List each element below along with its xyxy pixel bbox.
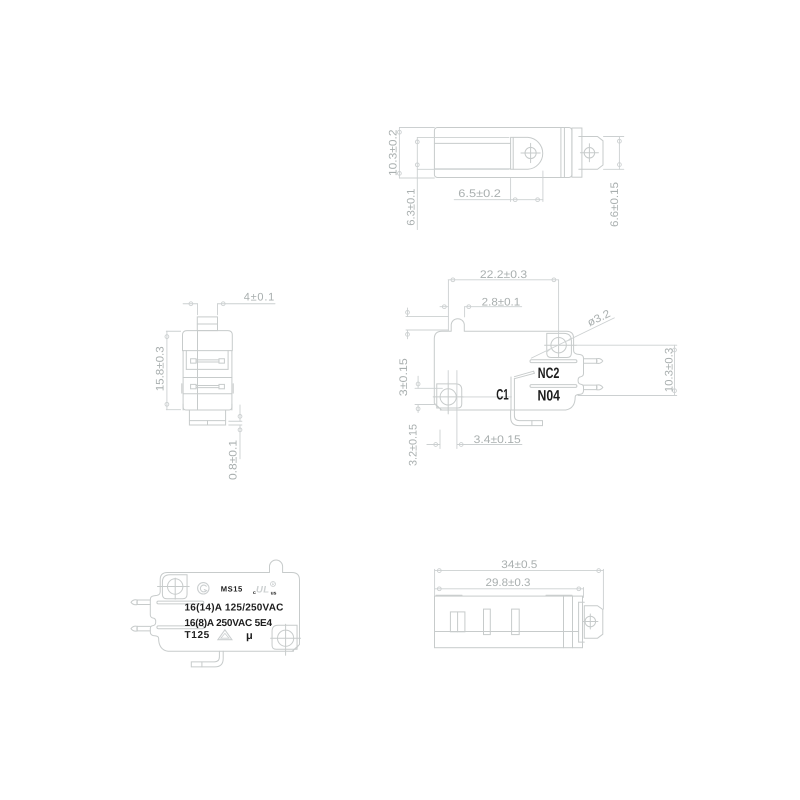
svg-text:16(14)A 125/250VAC: 16(14)A 125/250VAC <box>185 602 284 613</box>
svg-text:16(8)A 250VAC 5E4: 16(8)A 250VAC 5E4 <box>185 618 273 629</box>
svg-text:c: c <box>253 590 256 596</box>
svg-text:0.8±0.1: 0.8±0.1 <box>228 440 240 480</box>
svg-text:6.6±0.15: 6.6±0.15 <box>609 182 621 227</box>
svg-text:us: us <box>271 590 277 596</box>
svg-text:2.8±0.1: 2.8±0.1 <box>482 297 521 309</box>
svg-text:R: R <box>272 582 275 587</box>
svg-text:10.3±0.2: 10.3±0.2 <box>387 130 399 177</box>
svg-text:3±0.15: 3±0.15 <box>398 358 410 396</box>
svg-text:4±0.1: 4±0.1 <box>244 291 275 303</box>
svg-text:34±0.5: 34±0.5 <box>501 559 537 571</box>
svg-text:N04: N04 <box>538 388 561 405</box>
svg-text:UL: UL <box>256 585 269 596</box>
svg-text:22.2±0.3: 22.2±0.3 <box>480 269 527 281</box>
svg-text:MS15: MS15 <box>221 585 243 594</box>
svg-text:15.8±0.3: 15.8±0.3 <box>155 346 167 391</box>
svg-text:29.8±0.3: 29.8±0.3 <box>486 577 531 589</box>
svg-text:C1: C1 <box>496 387 509 404</box>
svg-text:ø3.2: ø3.2 <box>586 308 613 329</box>
svg-text:μ: μ <box>246 630 253 642</box>
svg-text:3.4±0.15: 3.4±0.15 <box>474 434 521 446</box>
svg-text:3.2±0.15: 3.2±0.15 <box>408 424 420 466</box>
svg-text:10.3±0.3: 10.3±0.3 <box>664 348 676 393</box>
svg-text:6.3±0.1: 6.3±0.1 <box>405 189 417 226</box>
svg-text:NC2: NC2 <box>538 365 560 382</box>
svg-text:T125: T125 <box>185 630 210 641</box>
svg-text:6.5±0.2: 6.5±0.2 <box>458 188 501 200</box>
